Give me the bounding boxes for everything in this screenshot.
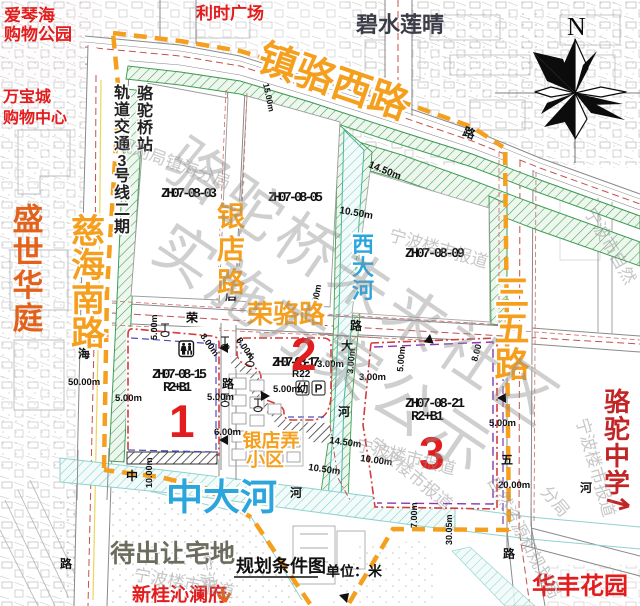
- svg-text:中大河: 中大河: [166, 477, 277, 518]
- svg-text:路: 路: [222, 377, 235, 391]
- svg-text:N: N: [567, 12, 586, 41]
- svg-text:南: 南: [71, 281, 105, 319]
- svg-text:路: 路: [71, 315, 106, 353]
- svg-text:二: 二: [114, 202, 130, 219]
- svg-text:碧水莲晴: 碧水莲晴: [355, 12, 444, 37]
- svg-text:7.00m: 7.00m: [409, 502, 419, 528]
- svg-text:50.00m: 50.00m: [68, 377, 100, 388]
- svg-text:五: 五: [501, 453, 513, 467]
- svg-text:华: 华: [13, 268, 44, 303]
- svg-text:购物公园: 购物公园: [4, 25, 72, 44]
- svg-text:小区: 小区: [246, 449, 284, 471]
- svg-text:单位：米: 单位：米: [326, 563, 383, 579]
- svg-text:5.00m: 5.00m: [207, 392, 234, 403]
- svg-text:期: 期: [114, 218, 130, 236]
- svg-text:R2+B1: R2+B1: [163, 381, 192, 396]
- svg-text:河: 河: [290, 486, 302, 500]
- svg-text:驼: 驼: [604, 414, 630, 444]
- svg-text:路: 路: [503, 547, 516, 561]
- svg-text:线: 线: [114, 184, 130, 202]
- svg-text:海: 海: [71, 247, 105, 285]
- svg-text:5.00m: 5.00m: [273, 384, 300, 395]
- svg-text:桥: 桥: [137, 119, 154, 137]
- svg-text:利时广场: 利时广场: [196, 4, 264, 23]
- svg-text:银店弄: 银店弄: [242, 430, 299, 452]
- svg-text:世: 世: [13, 235, 44, 270]
- svg-text:5.00m: 5.00m: [115, 393, 142, 404]
- svg-text:1: 1: [169, 395, 195, 447]
- svg-text:6.00m: 6.00m: [214, 427, 241, 438]
- svg-text:待出让宅地: 待出让宅地: [110, 540, 235, 568]
- svg-text:购物中心: 购物中心: [3, 109, 67, 127]
- svg-text:三: 三: [494, 274, 529, 313]
- svg-text:荣: 荣: [185, 311, 199, 325]
- svg-text:号: 号: [114, 167, 130, 185]
- svg-text:驼: 驼: [137, 102, 153, 120]
- svg-text:10.00m: 10.00m: [144, 457, 154, 488]
- svg-text:庭: 庭: [13, 301, 44, 336]
- svg-text:路: 路: [60, 557, 73, 571]
- svg-text:规划条件图: 规划条件图: [236, 556, 326, 576]
- svg-text:慈: 慈: [71, 213, 105, 251]
- svg-text:30.05m: 30.05m: [444, 514, 454, 545]
- svg-text:中: 中: [604, 441, 630, 471]
- svg-text:爱琴海: 爱琴海: [4, 6, 55, 25]
- svg-text:5.00m: 5.00m: [149, 314, 159, 340]
- svg-text:盛: 盛: [13, 202, 44, 237]
- svg-text:中: 中: [126, 469, 138, 483]
- svg-text:道: 道: [114, 101, 130, 119]
- svg-text:轨: 轨: [114, 84, 130, 102]
- svg-text:骆: 骆: [137, 84, 154, 103]
- svg-text:骆: 骆: [604, 387, 631, 417]
- svg-text:河: 河: [338, 405, 350, 419]
- svg-text:万宝城: 万宝城: [2, 88, 51, 106]
